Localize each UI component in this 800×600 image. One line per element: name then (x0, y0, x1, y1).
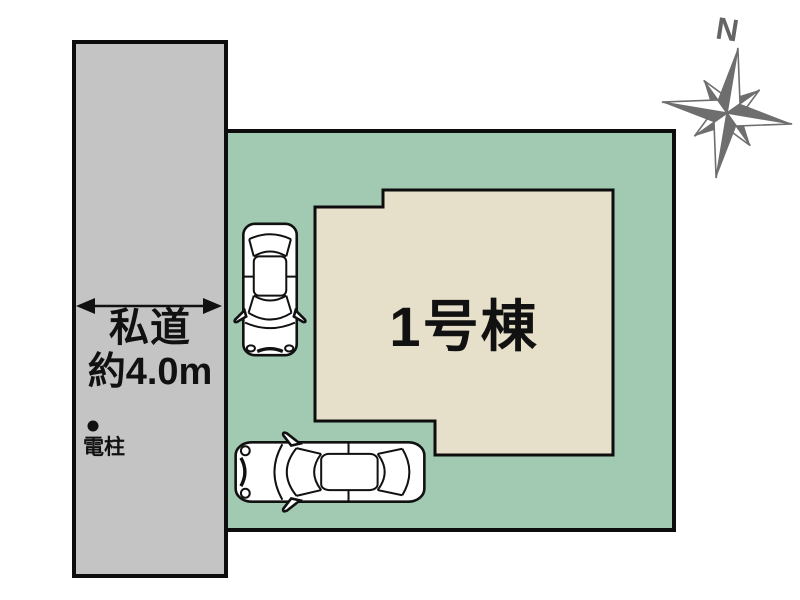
utility-pole-dot (88, 421, 99, 432)
road-name-text: 私道 (72, 306, 228, 351)
building-number-label: 1号棟 (315, 190, 613, 455)
compass-rose-icon (651, 37, 800, 189)
car-icon-vertical (235, 224, 306, 355)
road-width-text: 約4.0m (72, 351, 228, 394)
utility-pole-label: 電柱 (83, 431, 125, 461)
road-width-label: 私道 約4.0m (72, 306, 228, 393)
site-plan: 私道 約4.0m 電柱 1号棟 N (0, 0, 800, 600)
